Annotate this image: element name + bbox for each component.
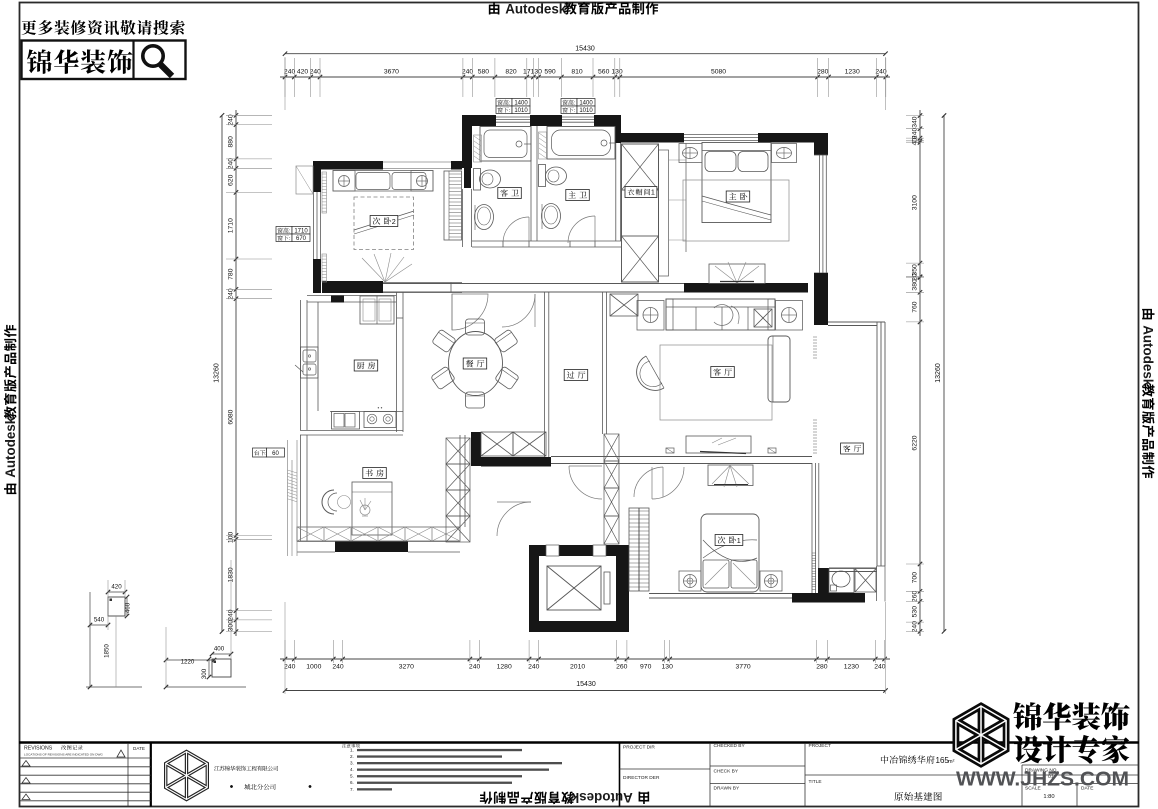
svg-text:6220: 6220 [912,435,919,450]
svg-text:130: 130 [662,664,674,671]
svg-text:7.: 7. [350,787,354,792]
svg-text:240: 240 [228,114,235,126]
svg-text:2: 2 [392,217,396,226]
svg-text:240: 240 [875,69,887,76]
svg-text:TITLE: TITLE [809,779,822,785]
svg-text:880: 880 [228,136,235,148]
svg-text:380: 380 [912,279,919,291]
svg-text:PROJECT: PROJECT [809,743,831,749]
svg-text:1: 1 [651,188,655,197]
svg-text:240: 240 [912,621,919,633]
svg-text:1850: 1850 [104,644,111,658]
svg-text:PROJECT DIR: PROJECT DIR [623,745,655,751]
svg-text:1220: 1220 [181,659,195,666]
svg-text:530: 530 [912,606,919,618]
svg-text:5.: 5. [350,774,354,779]
svg-text:240: 240 [228,288,235,300]
svg-text:LOCATIONS OF REVISIONS ARE IND: LOCATIONS OF REVISIONS ARE INDICATED ON … [24,753,103,757]
svg-text:4.: 4. [350,767,354,772]
svg-text:1: 1 [737,536,741,545]
svg-text:60: 60 [272,451,279,457]
svg-text:5080: 5080 [711,69,726,76]
svg-text:CHECKED BY: CHECKED BY [714,743,746,749]
svg-text:970: 970 [640,664,652,671]
svg-text:13260: 13260 [214,363,221,383]
svg-text:Autodesk: Autodesk [505,1,567,16]
svg-text:400: 400 [214,646,225,653]
svg-text:1010: 1010 [514,108,528,114]
svg-text:260: 260 [912,591,919,603]
svg-text:3.: 3. [350,761,354,766]
svg-text:580: 580 [478,69,490,76]
svg-text:670: 670 [296,236,307,242]
svg-text:1280: 1280 [497,664,512,671]
svg-text:420: 420 [111,584,122,591]
svg-text:540: 540 [94,617,105,624]
svg-text:780: 780 [228,268,235,280]
svg-text:3670: 3670 [384,69,399,76]
svg-text:240: 240 [469,664,481,671]
svg-text:DRAWN BY: DRAWN BY [714,786,740,792]
svg-text:WWW.JHZS.COM: WWW.JHZS.COM [956,769,1129,791]
svg-text:6.: 6. [350,780,354,785]
svg-text:700: 700 [912,572,919,584]
svg-text:6080: 6080 [228,409,235,424]
svg-text:3100: 3100 [912,195,919,210]
svg-text:2.: 2. [350,754,354,759]
svg-text:240: 240 [528,664,540,671]
svg-text:810: 810 [571,69,583,76]
svg-text:100: 100 [228,532,235,544]
svg-text:15430: 15430 [576,681,596,688]
svg-text:1710: 1710 [228,218,235,233]
svg-text:240: 240 [310,69,322,76]
svg-text:1400: 1400 [514,101,528,107]
svg-text:820: 820 [505,69,517,76]
svg-text:420: 420 [297,69,309,76]
svg-text:Autodesk: Autodesk [571,790,633,805]
svg-text:CHECK BY: CHECK BY [714,769,739,775]
svg-text:2010: 2010 [570,664,585,671]
svg-text:REVISIONS: REVISIONS [24,746,53,752]
svg-text:Autodesk: Autodesk [3,416,18,478]
svg-text:1.: 1. [350,748,354,753]
svg-text:590: 590 [544,69,556,76]
svg-text:620: 620 [228,174,235,186]
svg-text:240: 240 [874,664,886,671]
svg-text:3270: 3270 [399,664,414,671]
svg-text:460: 460 [125,602,132,613]
svg-text:1230: 1230 [844,664,859,671]
svg-text:240: 240 [284,69,296,76]
svg-text:240: 240 [228,158,235,170]
svg-text:DIRECTOR DER: DIRECTOR DER [623,775,660,781]
svg-text:1000: 1000 [306,664,321,671]
svg-text:1:80: 1:80 [1043,794,1054,800]
svg-text:3770: 3770 [736,664,751,671]
svg-text:280: 280 [816,664,828,671]
svg-text:1010: 1010 [579,108,593,114]
svg-text:m²: m² [948,759,955,765]
svg-text:1710: 1710 [294,229,308,235]
svg-text:240: 240 [284,664,296,671]
svg-text:• •: • • [378,406,383,412]
svg-text:1400: 1400 [579,101,593,107]
svg-text:560: 560 [598,69,610,76]
svg-text:DATE: DATE [133,746,145,751]
svg-text:15430: 15430 [575,46,595,53]
svg-text:1230: 1230 [845,69,860,76]
svg-text:280: 280 [817,69,829,76]
svg-text:Autodesk: Autodesk [1140,325,1155,387]
svg-text:240: 240 [332,664,344,671]
svg-text:300: 300 [201,668,208,679]
svg-text:40: 40 [912,138,919,146]
svg-text:13260: 13260 [935,363,942,383]
svg-text:260: 260 [616,664,628,671]
svg-text:340: 340 [912,116,919,128]
svg-text:130: 130 [611,69,623,76]
svg-text:760: 760 [912,301,919,313]
svg-text:240: 240 [462,69,474,76]
svg-text:17130: 17130 [523,69,542,76]
